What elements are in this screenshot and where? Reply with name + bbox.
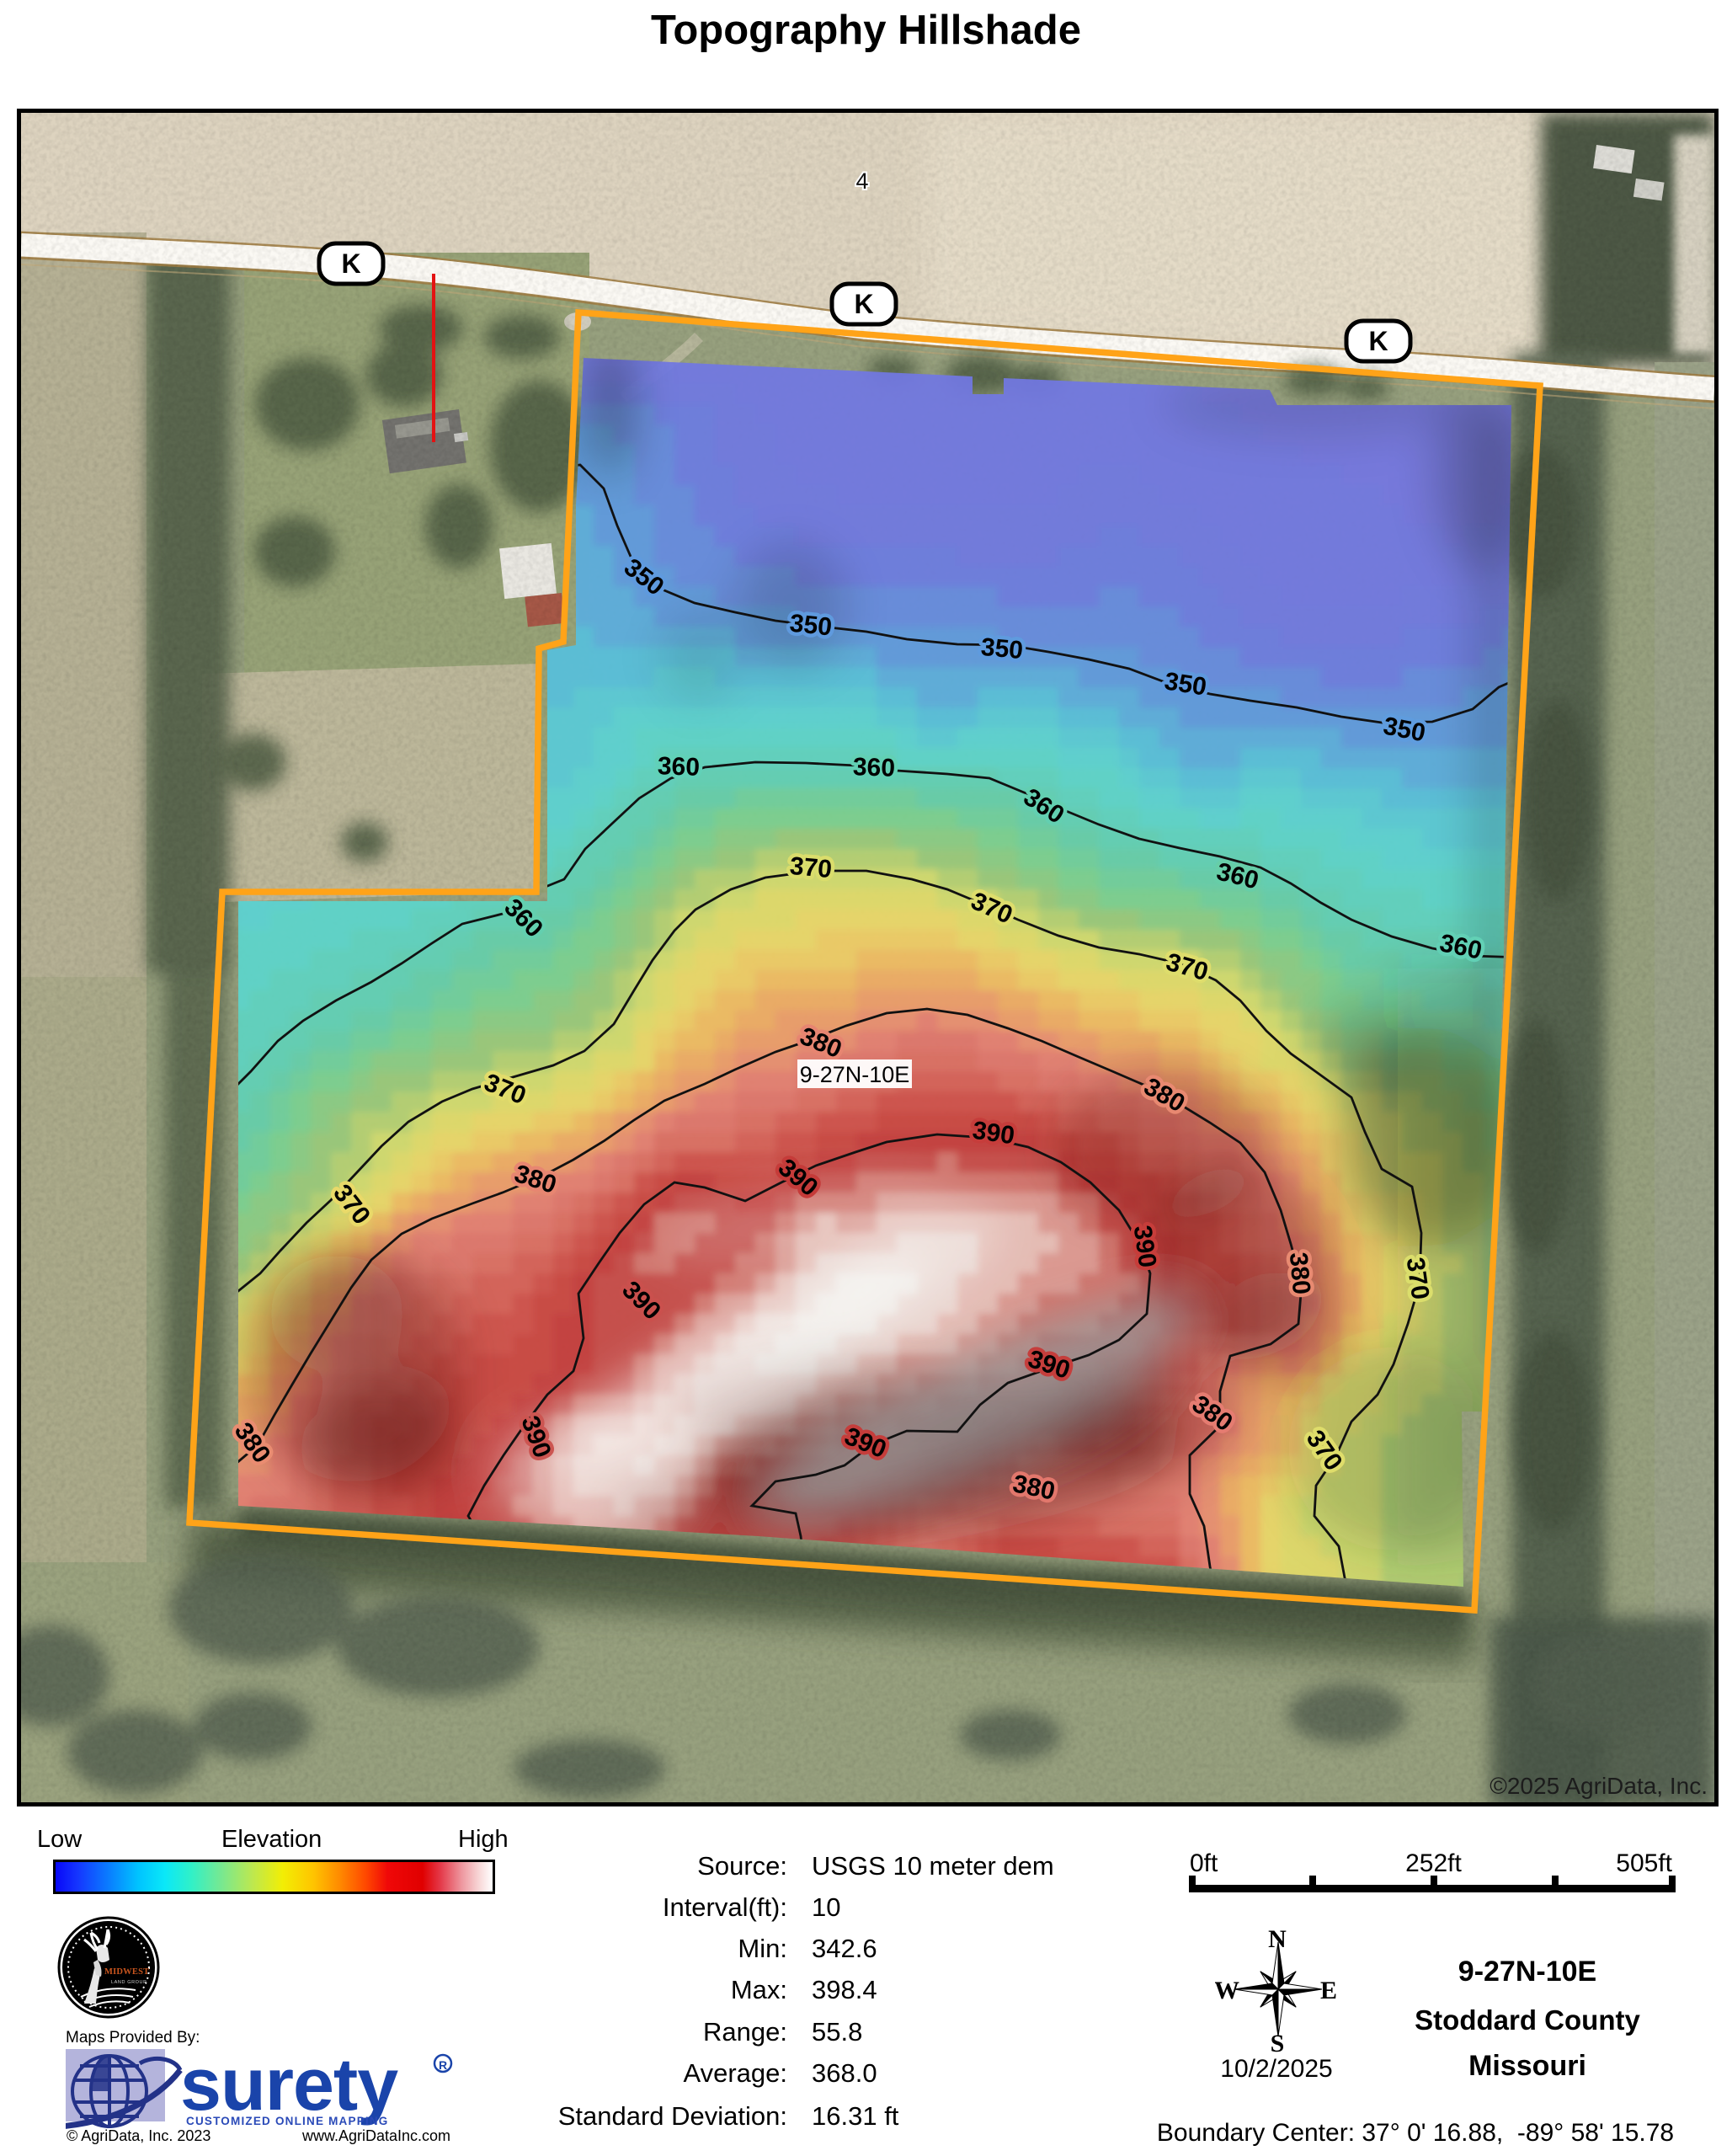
svg-text:350: 350 xyxy=(788,609,833,641)
svg-text:E: E xyxy=(1320,1977,1337,2004)
svg-text:K: K xyxy=(1368,326,1388,356)
svg-text:surety: surety xyxy=(180,2045,398,2126)
svg-text:©2025 AgriData, Inc.: ©2025 AgriData, Inc. xyxy=(1490,1773,1708,1799)
svg-text:9-27N-10E: 9-27N-10E xyxy=(800,1062,910,1087)
svg-text:370: 370 xyxy=(1401,1256,1435,1301)
svg-text:CUSTOMIZED ONLINE MAPPING: CUSTOMIZED ONLINE MAPPING xyxy=(186,2115,389,2127)
svg-text:370: 370 xyxy=(789,852,834,883)
svg-text:390: 390 xyxy=(1128,1224,1162,1269)
svg-text:R: R xyxy=(439,2058,447,2072)
svg-text:K: K xyxy=(854,289,873,319)
svg-text:380: 380 xyxy=(1284,1251,1315,1296)
svg-text:360: 360 xyxy=(852,753,895,782)
svg-text:350: 350 xyxy=(980,633,1025,664)
svg-text:MIDWEST: MIDWEST xyxy=(104,1967,149,1977)
svg-text:N: N xyxy=(1268,1925,1287,1953)
svg-text:W: W xyxy=(1215,1977,1239,2004)
svg-text:K: K xyxy=(341,248,360,279)
svg-text:390: 390 xyxy=(971,1117,1016,1150)
svg-text:4: 4 xyxy=(855,168,868,194)
svg-text:360: 360 xyxy=(657,752,700,782)
svg-text:LAND GROUP: LAND GROUP xyxy=(111,1980,147,1985)
svg-text:S: S xyxy=(1271,2030,1285,2057)
